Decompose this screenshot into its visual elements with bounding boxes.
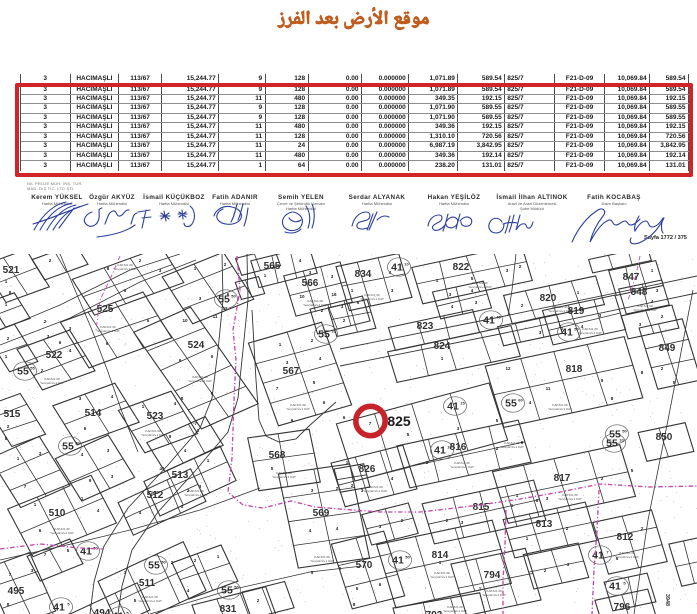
- svg-text:7: 7: [9, 572, 12, 577]
- svg-text:Yençok=2+1 KAT: Yençok=2+1 KAT: [548, 407, 572, 411]
- svg-text:793: 793: [426, 610, 443, 614]
- svg-text:40: 40: [496, 315, 501, 320]
- svg-text:41: 41: [447, 400, 459, 412]
- svg-text:1: 1: [207, 458, 210, 463]
- svg-text:3: 3: [539, 330, 542, 335]
- svg-text:2: 2: [641, 526, 644, 531]
- svg-text:521: 521: [3, 265, 20, 276]
- svg-text:50: 50: [75, 441, 80, 446]
- svg-text:4: 4: [184, 448, 187, 453]
- svg-text:825: 825: [387, 413, 411, 429]
- svg-text:8: 8: [611, 396, 614, 401]
- svg-text:848: 848: [631, 287, 648, 298]
- svg-text:4: 4: [319, 356, 322, 361]
- svg-text:3: 3: [546, 496, 549, 501]
- svg-text:Yençok=2+1 KAT: Yençok=2+1 KAT: [272, 475, 296, 479]
- svg-text:816: 816: [450, 442, 467, 453]
- svg-text:515: 515: [4, 409, 21, 420]
- svg-text:5: 5: [407, 432, 410, 437]
- svg-text:Yençok=2+1 KAT: Yençok=2+1 KAT: [184, 493, 208, 497]
- svg-text:1: 1: [526, 536, 529, 541]
- svg-text:10: 10: [619, 438, 624, 443]
- svg-text:1: 1: [479, 586, 482, 591]
- svg-text:Yençok=2+1 KAT: Yençok=2+1 KAT: [50, 531, 74, 535]
- svg-text:3: 3: [639, 322, 642, 327]
- svg-text:3: 3: [391, 288, 394, 293]
- svg-text:847: 847: [623, 272, 640, 283]
- svg-text:41: 41: [483, 314, 495, 326]
- svg-text:1: 1: [279, 342, 282, 347]
- svg-text:2: 2: [401, 518, 404, 523]
- svg-text:2: 2: [661, 314, 664, 319]
- svg-text:50: 50: [231, 294, 236, 299]
- svg-text:50: 50: [574, 327, 579, 332]
- svg-text:6: 6: [521, 440, 524, 445]
- svg-text:512: 512: [147, 490, 164, 501]
- svg-text:2: 2: [7, 424, 10, 429]
- svg-text:4: 4: [391, 476, 394, 481]
- svg-text:5: 5: [211, 354, 214, 359]
- svg-text:6: 6: [39, 528, 42, 533]
- svg-text:4: 4: [97, 508, 100, 513]
- svg-text:4: 4: [139, 510, 142, 515]
- svg-text:9: 9: [89, 478, 92, 483]
- svg-text:Yençok=2+1 KAT: Yençok=2+1 KAT: [430, 575, 454, 579]
- svg-text:1: 1: [194, 266, 197, 271]
- svg-text:8: 8: [641, 370, 644, 375]
- svg-text:566: 566: [302, 278, 319, 289]
- svg-text:55: 55: [30, 366, 35, 371]
- svg-text:9: 9: [601, 378, 604, 383]
- svg-text:3: 3: [111, 474, 114, 479]
- svg-text:3: 3: [656, 288, 659, 293]
- svg-text:5: 5: [126, 611, 129, 614]
- svg-text:2: 2: [321, 308, 324, 313]
- svg-text:11: 11: [546, 386, 551, 391]
- svg-text:41: 41: [53, 601, 65, 613]
- svg-text:4: 4: [336, 526, 339, 531]
- svg-text:815: 815: [473, 502, 490, 513]
- svg-text:50: 50: [234, 585, 239, 590]
- svg-text:Yençok=2+1 KAT: Yençok=2+1 KAT: [450, 465, 474, 469]
- svg-text:1: 1: [439, 560, 442, 565]
- svg-text:6: 6: [59, 340, 62, 345]
- svg-text:3: 3: [79, 396, 82, 401]
- svg-text:511: 511: [139, 578, 156, 589]
- svg-text:12: 12: [505, 366, 511, 371]
- svg-text:513: 513: [172, 470, 189, 481]
- svg-text:41: 41: [609, 580, 621, 592]
- svg-text:813: 813: [536, 519, 553, 530]
- svg-text:1: 1: [17, 456, 20, 461]
- svg-text:568: 568: [269, 450, 286, 461]
- svg-text:Yençok=2+1 KAT: Yençok=2+1 KAT: [188, 379, 212, 383]
- svg-text:1: 1: [5, 302, 8, 307]
- svg-text:Yençok=2+1 KAT: Yençok=2+1 KAT: [578, 331, 602, 335]
- svg-text:3: 3: [311, 488, 314, 493]
- svg-text:1: 1: [5, 279, 8, 284]
- svg-text:812: 812: [617, 532, 634, 543]
- svg-text:8: 8: [181, 396, 184, 401]
- svg-text:831: 831: [220, 604, 237, 614]
- svg-text:3: 3: [309, 270, 312, 275]
- svg-text:Yençok=2+1 KAT: Yençok=2+1 KAT: [500, 445, 524, 449]
- svg-text:6: 6: [106, 341, 109, 346]
- svg-text:5: 5: [623, 581, 626, 586]
- svg-text:1: 1: [5, 354, 8, 359]
- svg-text:10: 10: [182, 318, 188, 323]
- svg-text:3: 3: [331, 274, 334, 279]
- svg-text:1: 1: [436, 278, 439, 283]
- svg-text:1: 1: [351, 288, 354, 293]
- svg-text:2: 2: [311, 338, 314, 343]
- svg-text:5: 5: [496, 418, 499, 423]
- svg-text:Yençok=2+1 KAT: Yençok=2+1 KAT: [96, 329, 120, 333]
- svg-text:8: 8: [107, 266, 110, 271]
- svg-text:50: 50: [405, 555, 410, 560]
- svg-text:Yençok=2+1 KAT: Yençok=2+1 KAT: [615, 555, 639, 559]
- svg-text:818: 818: [566, 364, 583, 375]
- svg-text:41: 41: [561, 326, 573, 338]
- svg-text:817: 817: [554, 473, 571, 484]
- svg-text:50: 50: [622, 429, 627, 434]
- svg-text:819: 819: [568, 306, 585, 317]
- svg-text:Yençok=2+1 KAT: Yençok=2+1 KAT: [138, 599, 162, 603]
- svg-text:55: 55: [221, 584, 233, 596]
- svg-text:826: 826: [359, 464, 376, 475]
- svg-text:41: 41: [391, 261, 403, 273]
- svg-text:7: 7: [369, 421, 372, 426]
- svg-text:2: 2: [343, 318, 346, 323]
- svg-text:3: 3: [449, 292, 452, 297]
- svg-text:3: 3: [107, 448, 110, 453]
- svg-text:4: 4: [451, 304, 454, 309]
- svg-text:1: 1: [81, 496, 84, 501]
- svg-text:4: 4: [187, 588, 190, 593]
- svg-text:1: 1: [577, 290, 580, 295]
- svg-text:2: 2: [187, 488, 190, 493]
- svg-text:3: 3: [567, 562, 570, 567]
- svg-text:55: 55: [148, 559, 160, 571]
- svg-text:1: 1: [516, 493, 519, 498]
- svg-text:2: 2: [257, 598, 260, 603]
- svg-text:5: 5: [134, 598, 137, 603]
- svg-text:4: 4: [309, 528, 312, 533]
- svg-text:6: 6: [536, 498, 539, 503]
- svg-text:3: 3: [47, 334, 50, 339]
- svg-text:4: 4: [471, 288, 474, 293]
- svg-text:7: 7: [44, 552, 47, 557]
- svg-text:5: 5: [147, 318, 150, 323]
- svg-text:1: 1: [426, 460, 429, 465]
- svg-text:1: 1: [441, 356, 444, 361]
- svg-text:7: 7: [24, 484, 27, 489]
- svg-text:16: 16: [331, 292, 337, 297]
- svg-text:9: 9: [179, 358, 182, 363]
- svg-text:10: 10: [331, 329, 336, 334]
- svg-text:522: 522: [46, 350, 63, 361]
- svg-text:4: 4: [111, 394, 114, 399]
- svg-text:569: 569: [313, 508, 330, 519]
- svg-text:10: 10: [447, 445, 452, 450]
- svg-text:41: 41: [80, 545, 92, 557]
- svg-text:794: 794: [484, 570, 501, 581]
- svg-text:849: 849: [659, 343, 676, 354]
- svg-text:1: 1: [217, 554, 220, 559]
- svg-text:3948: 3948: [664, 594, 670, 606]
- svg-text:567: 567: [283, 366, 300, 377]
- svg-text:8: 8: [353, 602, 356, 607]
- svg-text:2: 2: [139, 258, 142, 263]
- svg-text:9: 9: [169, 434, 172, 439]
- svg-text:55: 55: [606, 437, 618, 449]
- svg-text:15: 15: [460, 401, 465, 406]
- svg-text:3: 3: [286, 360, 289, 365]
- svg-text:8: 8: [5, 436, 8, 441]
- svg-text:5: 5: [67, 602, 70, 607]
- svg-text:2: 2: [544, 568, 547, 573]
- svg-text:6: 6: [84, 426, 87, 431]
- svg-text:7: 7: [606, 550, 609, 555]
- svg-text:55: 55: [17, 365, 29, 377]
- svg-text:2: 2: [351, 483, 354, 488]
- svg-text:524: 524: [188, 340, 205, 351]
- svg-text:4: 4: [174, 401, 177, 406]
- svg-text:494: 494: [94, 608, 111, 614]
- svg-text:41: 41: [392, 554, 404, 566]
- svg-text:Yençok=2+1 KAT: Yençok=2+1 KAT: [443, 609, 467, 613]
- svg-text:55: 55: [218, 293, 230, 305]
- svg-text:1: 1: [264, 273, 267, 278]
- svg-text:60: 60: [518, 398, 523, 403]
- svg-text:55: 55: [318, 328, 330, 340]
- svg-text:10: 10: [299, 294, 305, 299]
- svg-text:820: 820: [540, 293, 557, 304]
- svg-text:2: 2: [661, 366, 664, 371]
- svg-text:3: 3: [461, 520, 464, 525]
- svg-text:55: 55: [505, 397, 517, 409]
- svg-text:822: 822: [453, 262, 470, 273]
- svg-text:3: 3: [159, 268, 162, 273]
- svg-text:5: 5: [271, 466, 274, 471]
- svg-text:1: 1: [34, 502, 37, 507]
- svg-text:510: 510: [49, 508, 66, 519]
- svg-text:5: 5: [311, 570, 314, 575]
- svg-text:6: 6: [323, 400, 326, 405]
- svg-text:5: 5: [313, 380, 316, 385]
- svg-text:4: 4: [529, 400, 532, 405]
- svg-text:2: 2: [7, 336, 10, 341]
- svg-text:2: 2: [521, 303, 524, 308]
- svg-text:523: 523: [147, 411, 164, 422]
- svg-text:2: 2: [496, 446, 499, 451]
- svg-text:3: 3: [199, 296, 202, 301]
- svg-text:5: 5: [356, 586, 359, 591]
- svg-text:1: 1: [651, 268, 654, 273]
- svg-text:3: 3: [457, 426, 460, 431]
- svg-text:55: 55: [62, 440, 74, 452]
- svg-text:10: 10: [404, 262, 409, 267]
- svg-text:2: 2: [566, 526, 569, 531]
- svg-text:2: 2: [41, 368, 44, 373]
- svg-text:Yençok=2+1 KAT: Yençok=2+1 KAT: [558, 497, 582, 501]
- svg-text:3: 3: [39, 451, 42, 456]
- svg-text:3: 3: [379, 524, 382, 529]
- svg-text:Yençok=2+1 KAT: Yençok=2+1 KAT: [286, 407, 310, 411]
- svg-text:6: 6: [379, 582, 382, 587]
- svg-text:41: 41: [592, 549, 604, 561]
- svg-text:41: 41: [434, 444, 446, 456]
- svg-text:2: 2: [49, 258, 52, 263]
- svg-text:8: 8: [7, 602, 10, 607]
- svg-text:Yençok=2+1 KAT: Yençok=2+1 KAT: [40, 381, 64, 385]
- svg-text:834: 834: [355, 269, 372, 280]
- svg-text:4: 4: [69, 348, 72, 353]
- svg-text:4: 4: [299, 258, 302, 263]
- svg-text:5: 5: [631, 468, 634, 473]
- svg-text:4: 4: [81, 452, 84, 457]
- svg-text:Yençok=2+1 KAT: Yençok=2+1 KAT: [363, 489, 387, 493]
- svg-text:2: 2: [446, 518, 449, 523]
- svg-text:2: 2: [224, 262, 227, 267]
- svg-text:6: 6: [343, 415, 346, 420]
- svg-text:570: 570: [356, 560, 373, 571]
- svg-text:3: 3: [181, 504, 184, 509]
- svg-text:50: 50: [161, 560, 166, 565]
- svg-text:2: 2: [601, 476, 604, 481]
- svg-text:Yençok=2+1 KAT: Yençok=2+1 KAT: [310, 559, 334, 563]
- svg-text:2: 2: [519, 264, 522, 269]
- svg-text:5: 5: [67, 548, 70, 553]
- svg-text:7: 7: [276, 386, 279, 391]
- svg-text:1: 1: [346, 460, 349, 465]
- svg-text:9: 9: [291, 418, 294, 423]
- svg-text:3: 3: [506, 268, 509, 273]
- svg-text:3: 3: [475, 300, 478, 305]
- svg-text:1: 1: [142, 404, 145, 409]
